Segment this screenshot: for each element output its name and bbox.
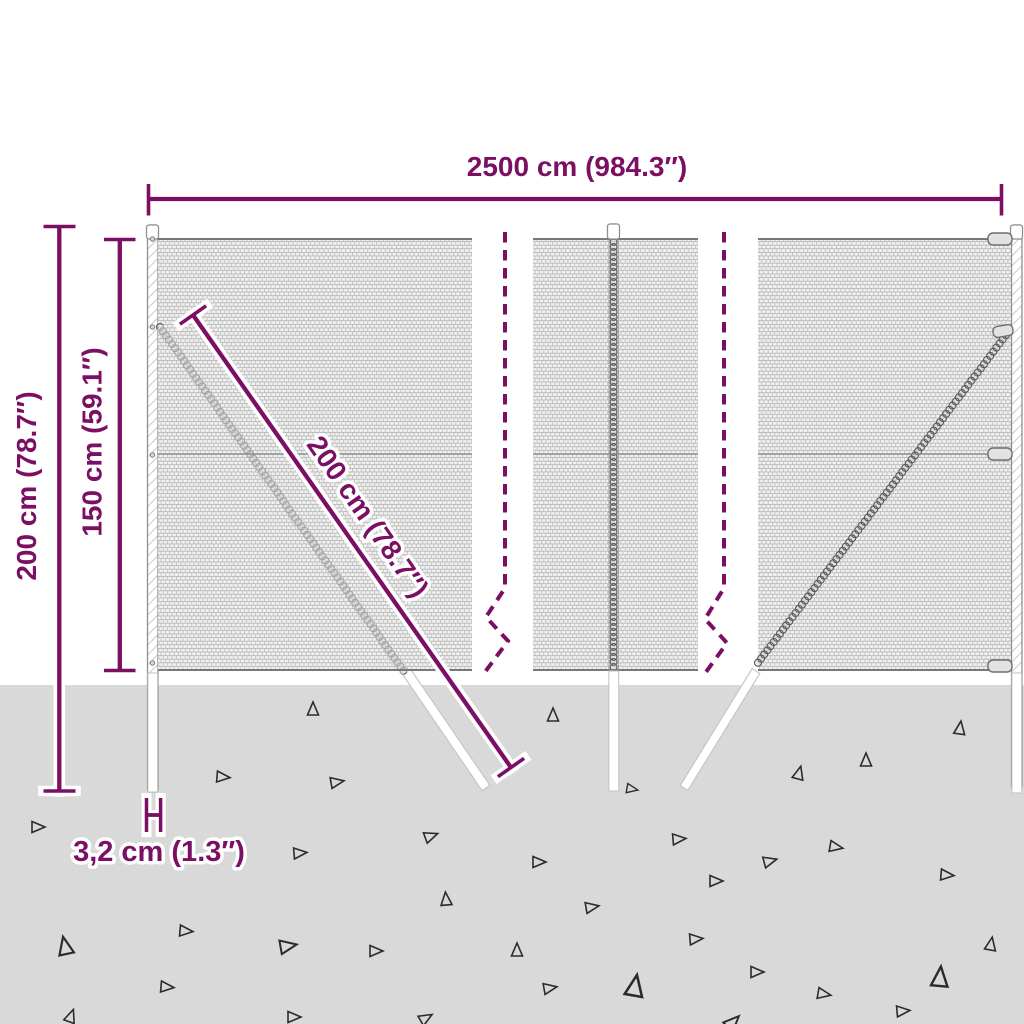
svg-text:2500 cm (984.3″): 2500 cm (984.3″) bbox=[467, 151, 687, 182]
svg-text:200 cm (78.7″): 200 cm (78.7″) bbox=[11, 391, 42, 580]
svg-text:3,2 cm (1.3″): 3,2 cm (1.3″) bbox=[73, 836, 245, 868]
svg-text:150 cm (59.1″): 150 cm (59.1″) bbox=[77, 347, 108, 536]
